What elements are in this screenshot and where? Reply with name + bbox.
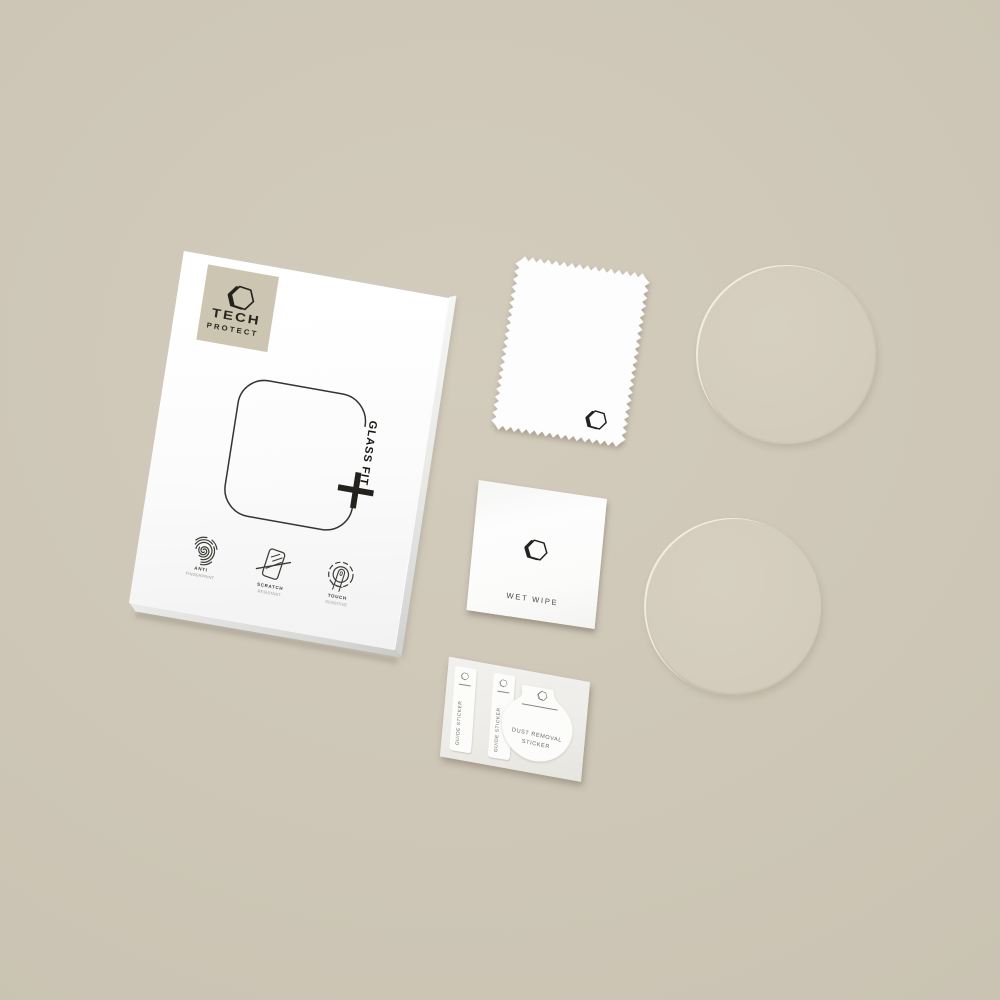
svg-text:FINGERPRINT: FINGERPRINT bbox=[185, 570, 214, 580]
